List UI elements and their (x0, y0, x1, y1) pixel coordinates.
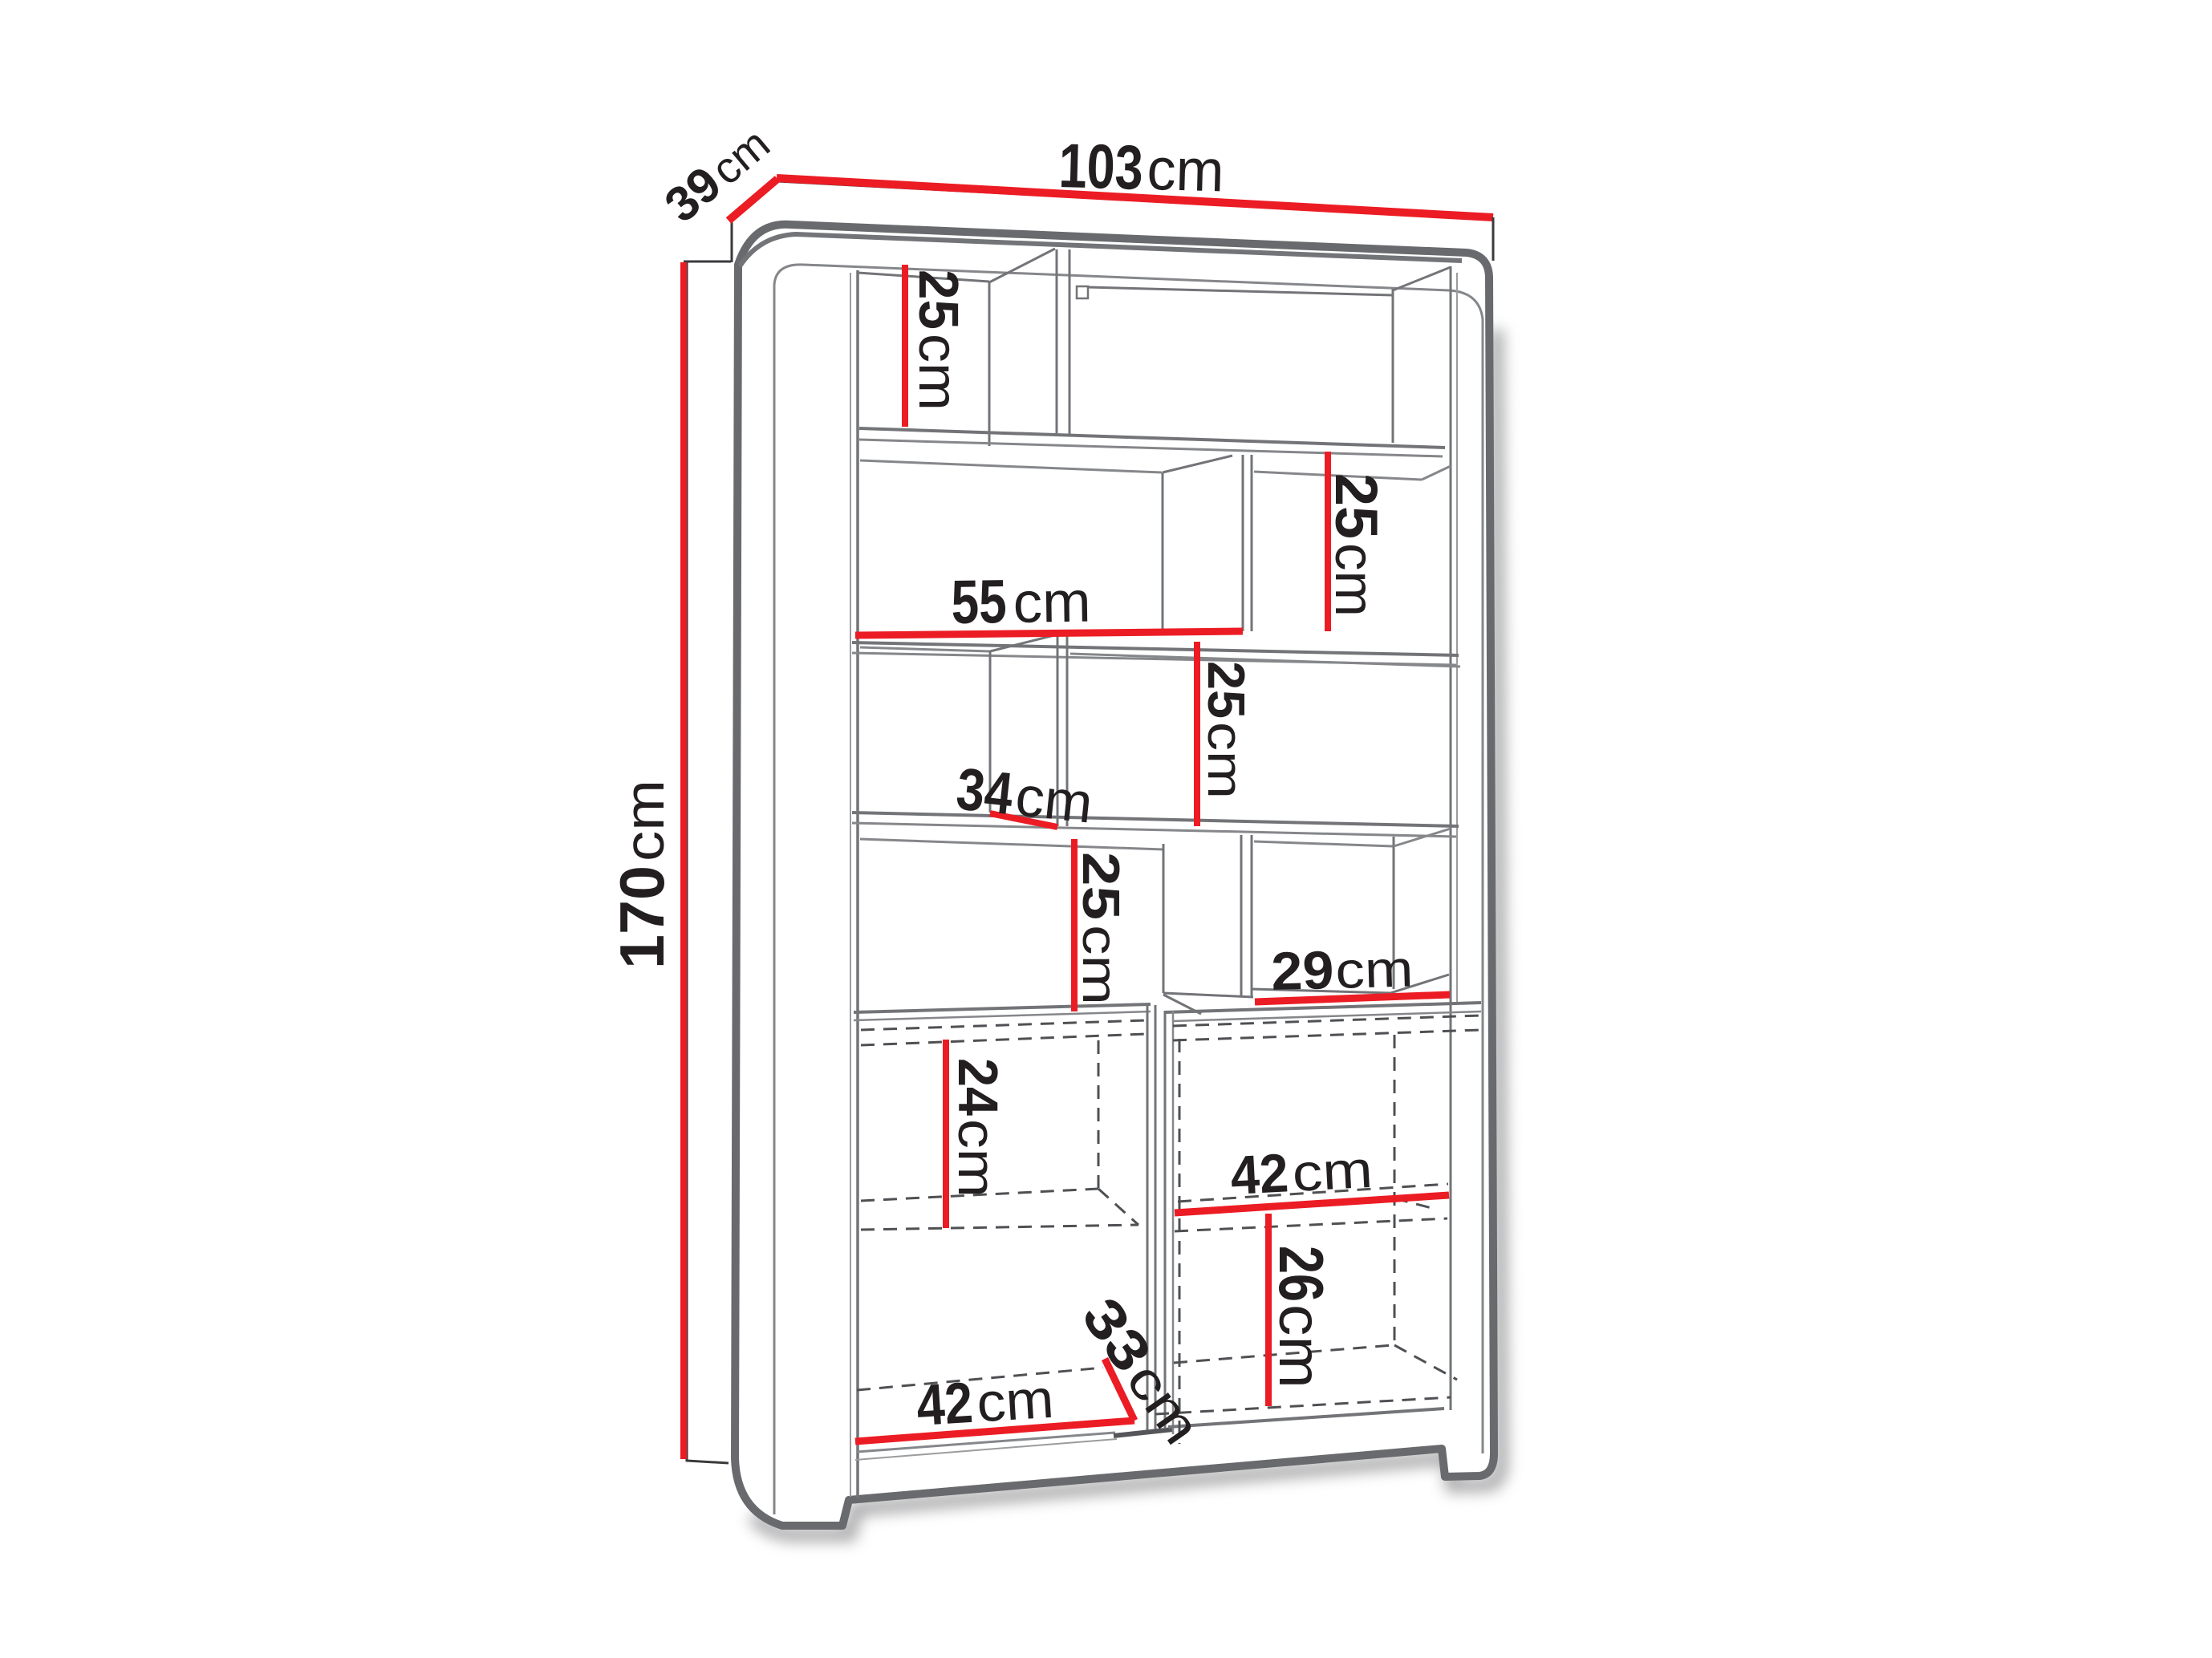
svg-text:25: 25 (907, 270, 970, 330)
svg-text:26: 26 (1266, 1246, 1337, 1302)
svg-text:55: 55 (951, 567, 1007, 637)
svg-text:cm: cm (1324, 543, 1386, 617)
svg-text:cm: cm (1147, 136, 1225, 204)
svg-text:24: 24 (947, 1058, 1009, 1116)
svg-text:170: 170 (607, 865, 677, 969)
svg-text:42: 42 (1229, 1142, 1290, 1206)
svg-text:cm: cm (1291, 1140, 1374, 1202)
svg-text:103: 103 (1058, 130, 1144, 203)
svg-text:25: 25 (1323, 473, 1390, 539)
svg-text:25: 25 (1197, 661, 1256, 719)
svg-text:cm: cm (907, 334, 969, 411)
svg-text:cm: cm (975, 1368, 1055, 1434)
svg-text:cm: cm (1267, 1304, 1333, 1388)
svg-text:34: 34 (953, 755, 1016, 827)
svg-text:cm: cm (1197, 722, 1252, 799)
svg-text:cm: cm (1013, 764, 1096, 835)
svg-text:cm: cm (1334, 939, 1414, 999)
svg-text:cm: cm (1013, 570, 1091, 635)
svg-text:25: 25 (1072, 852, 1130, 920)
svg-text:cm: cm (948, 1119, 1007, 1198)
svg-text:cm: cm (613, 780, 676, 861)
svg-text:29: 29 (1270, 940, 1334, 1002)
svg-text:42: 42 (915, 1371, 975, 1438)
svg-text:cm: cm (1073, 925, 1127, 1005)
